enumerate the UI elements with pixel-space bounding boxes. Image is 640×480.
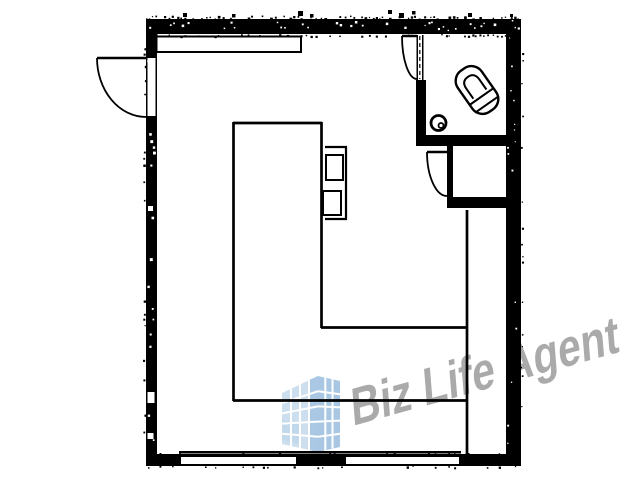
- svg-text:Biz Life Agent: Biz Life Agent: [349, 305, 621, 438]
